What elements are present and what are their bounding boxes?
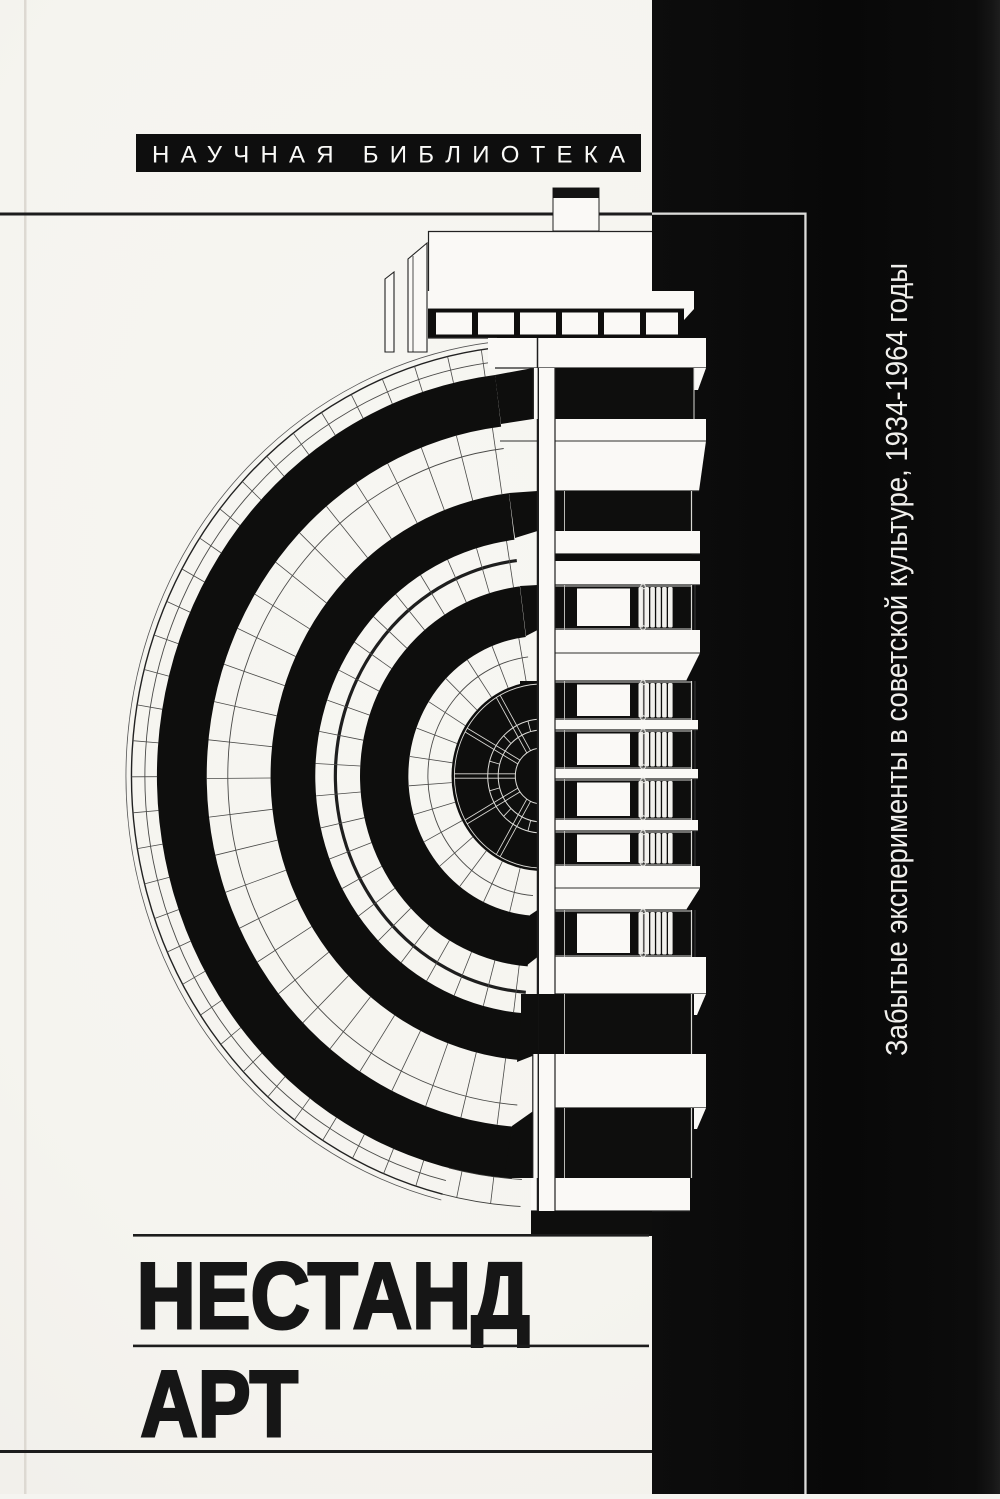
svg-text:Забытые эксперименты в советск: Забытые эксперименты в советской культур… xyxy=(879,263,914,1056)
svg-text:НЕСТАНД: НЕСТАНД xyxy=(137,1243,530,1348)
svg-text:АРТ: АРТ xyxy=(141,1353,299,1456)
